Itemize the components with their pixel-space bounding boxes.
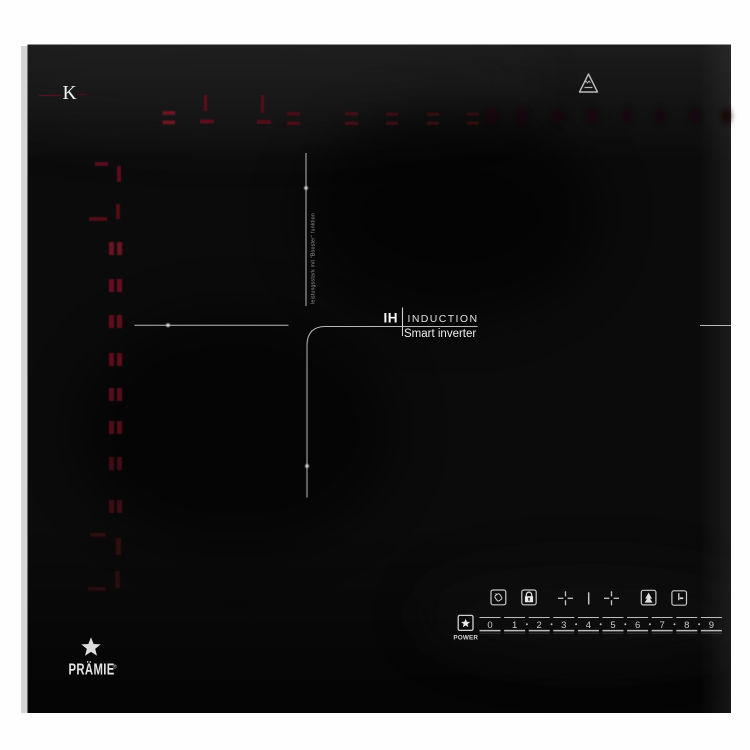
svg-text:8: 8 <box>684 620 689 631</box>
svg-text:7: 7 <box>660 620 665 631</box>
svg-text:Smart inverter: Smart inverter <box>404 328 476 340</box>
svg-text:POWER: POWER <box>453 635 478 642</box>
svg-text:K: K <box>63 83 77 104</box>
svg-text:6: 6 <box>635 620 640 631</box>
svg-text:9: 9 <box>709 620 714 631</box>
svg-text:0: 0 <box>487 620 492 631</box>
svg-text:leistungsstark mit "Booster" f: leistungsstark mit "Booster" funktion <box>311 213 317 304</box>
svg-text:5: 5 <box>610 620 615 631</box>
svg-text:2: 2 <box>537 620 542 631</box>
svg-text:INDUCTION: INDUCTION <box>408 313 479 325</box>
svg-text:IH: IH <box>384 311 399 326</box>
svg-text:3: 3 <box>561 620 566 631</box>
svg-text:4: 4 <box>586 620 591 631</box>
svg-text:1: 1 <box>512 620 517 631</box>
svg-text:PRÄMIE: PRÄMIE <box>69 661 115 678</box>
